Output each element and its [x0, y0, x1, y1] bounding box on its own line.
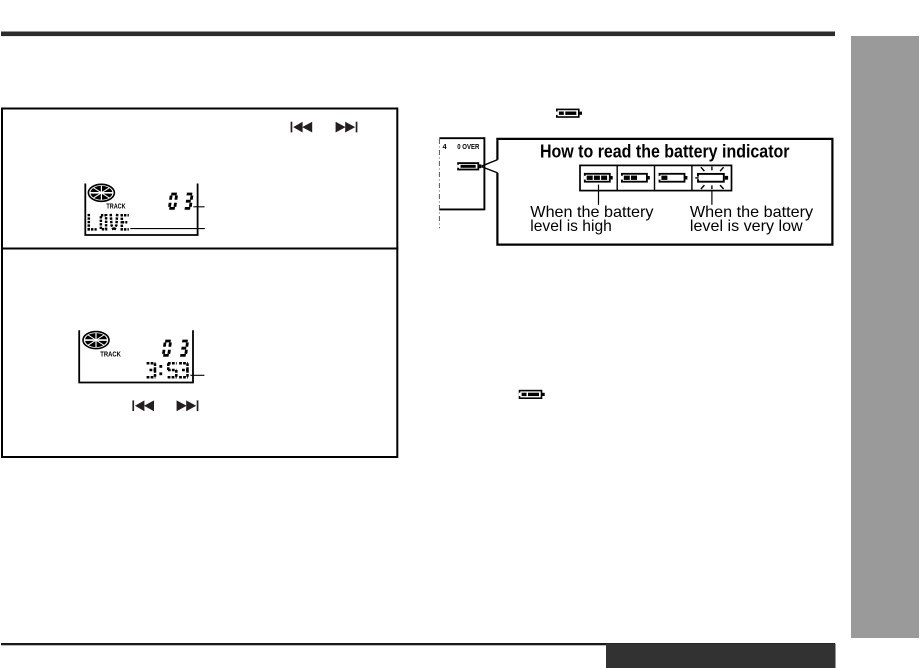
svg-text:0 OVER: 0 OVER [457, 142, 480, 151]
svg-text:TRACK: TRACK [100, 350, 121, 359]
svg-text:TRACK: TRACK [106, 202, 126, 211]
svg-text:How to read the battery indica: How to read the battery indicator [540, 140, 790, 161]
svg-text:level is high: level is high [530, 218, 612, 235]
svg-text:level is very low: level is very low [690, 218, 803, 235]
svg-text:4: 4 [443, 142, 448, 151]
